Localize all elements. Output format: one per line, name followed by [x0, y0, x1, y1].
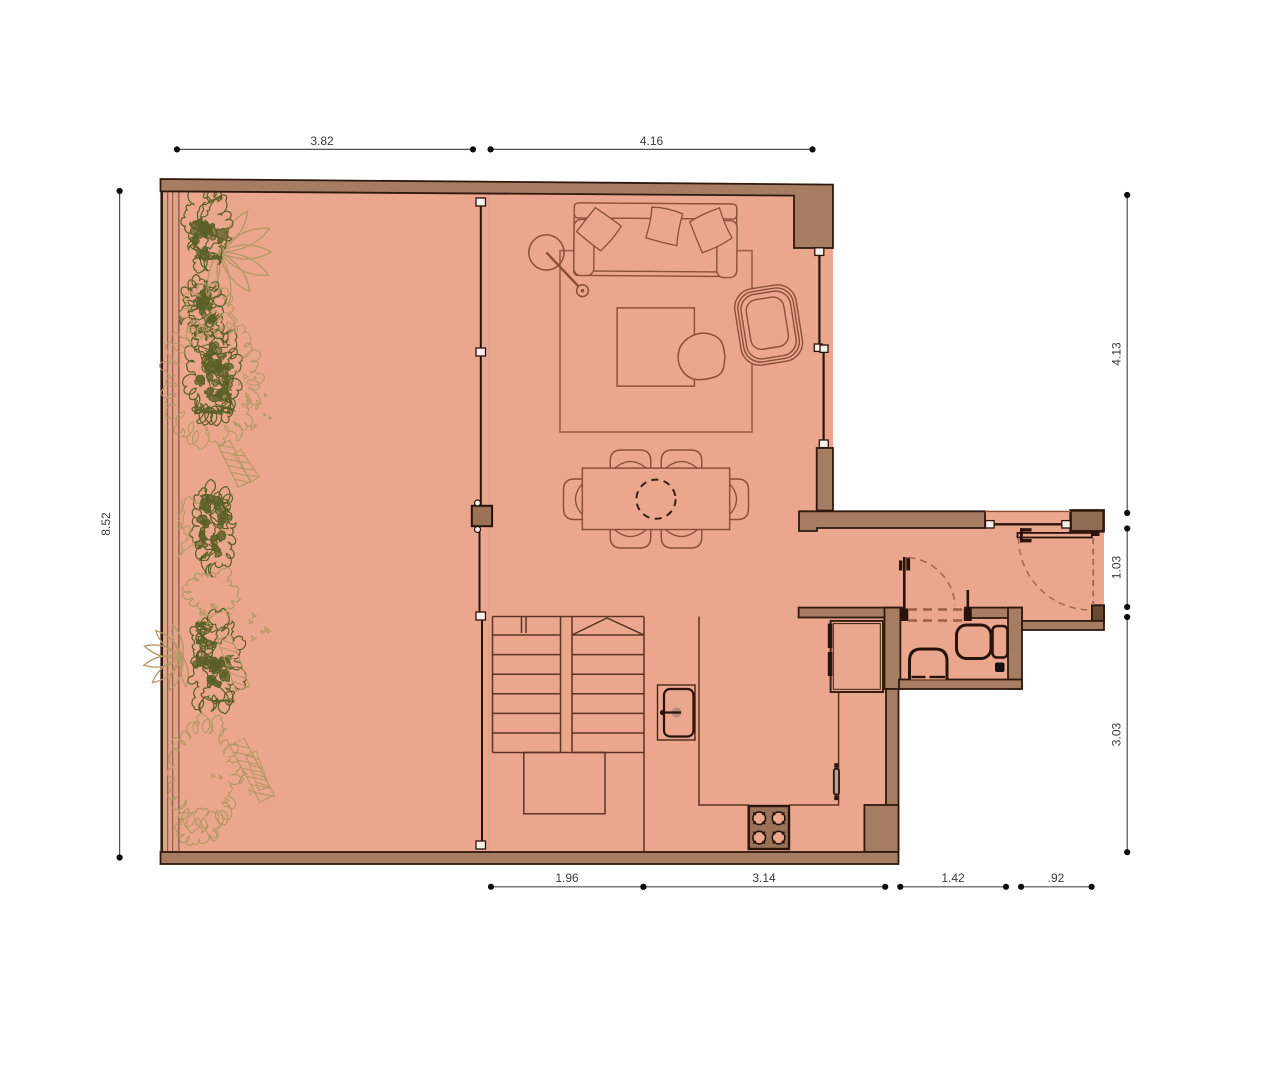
svg-text:1.42: 1.42	[941, 871, 965, 885]
svg-text:3.03: 3.03	[1110, 722, 1124, 746]
svg-text:.92: .92	[1048, 871, 1065, 885]
svg-text:3.82: 3.82	[310, 134, 334, 148]
svg-text:4.16: 4.16	[640, 134, 664, 148]
svg-text:8.52: 8.52	[99, 512, 113, 536]
svg-text:3.14: 3.14	[752, 871, 776, 885]
svg-text:1.03: 1.03	[1110, 555, 1124, 579]
svg-text:4.13: 4.13	[1110, 342, 1124, 366]
svg-text:1.96: 1.96	[555, 871, 579, 885]
